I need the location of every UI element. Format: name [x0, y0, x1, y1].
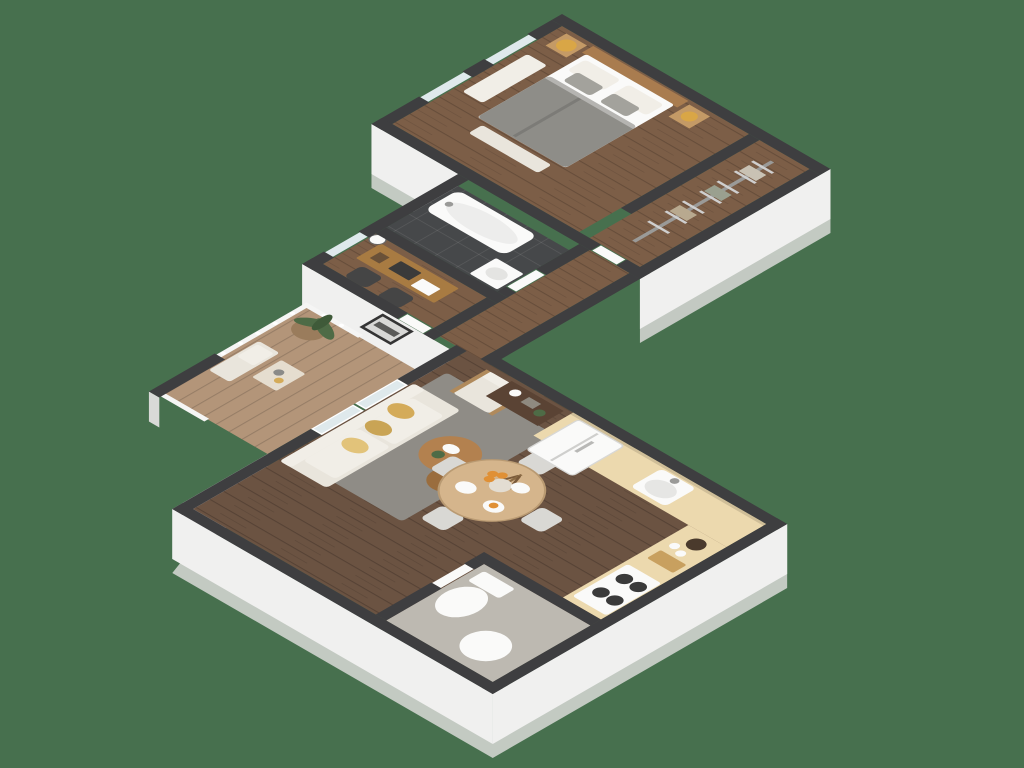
floor-plan-stage — [0, 0, 1024, 768]
isometric-floor-plan — [0, 0, 1024, 768]
